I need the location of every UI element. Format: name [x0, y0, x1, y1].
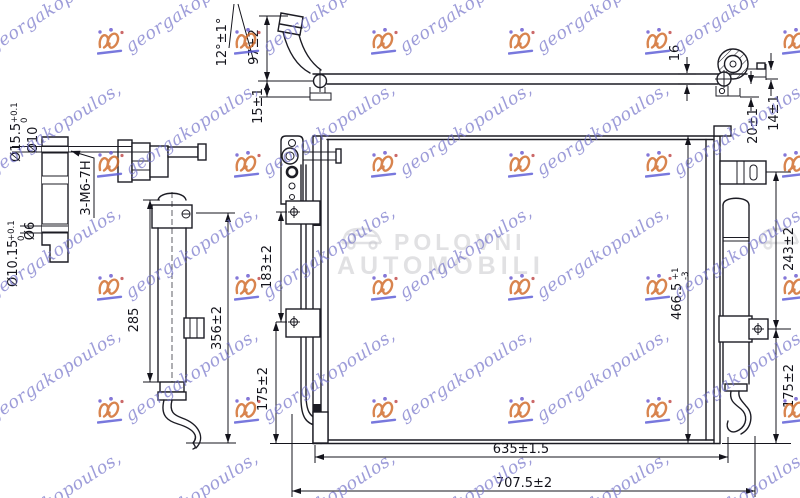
georgakopoulos-logo-icon: [98, 151, 124, 177]
svg-text:+1: +1: [671, 267, 681, 280]
georgakopoulos-logo-icon: [509, 151, 535, 177]
dim-receiver-length: 285: [127, 308, 142, 333]
georgakopoulos-logo-icon: [646, 397, 672, 423]
watermark-text: georgakopoulos,: [122, 448, 262, 498]
georgakopoulos-logo-icon: [98, 397, 124, 423]
svg-text:+0.1: +0.1: [7, 220, 17, 241]
georgakopoulos-logo-icon: [646, 151, 672, 177]
svg-text:0: 0: [20, 118, 30, 123]
watermark-text: georgakopoulos,: [259, 325, 399, 426]
georgakopoulos-logo-icon: [509, 397, 535, 423]
watermark-text: georgakopoulos,: [259, 79, 399, 180]
georgakopoulos-logo-icon: [372, 28, 398, 54]
dim-flange-thread: 3-M6-7H: [79, 160, 94, 215]
technical-drawing-page: POLOVNI AUTOMOBILI: [0, 0, 800, 498]
watermark-text: georgakopoulos,: [396, 325, 536, 426]
georgakopoulos-logo-icon: [235, 151, 261, 177]
watermark-text: georgakopoulos,: [533, 202, 673, 303]
watermark-text: georgakopoulos,: [670, 202, 800, 303]
georgakopoulos-logo-icon: [372, 397, 398, 423]
watermark-text: georgakopoulos,: [0, 448, 125, 498]
georgakopoulos-logo-icon: [783, 28, 800, 54]
watermark-text: georgakopoulos,: [533, 79, 673, 180]
georgakopoulos-logo-icon: [235, 274, 261, 300]
georgakopoulos-logo-icon: [646, 274, 672, 300]
georgakopoulos-logo-icon: [509, 28, 535, 54]
condenser-drawing-svg: POLOVNI AUTOMOBILI: [0, 0, 800, 498]
georgakopoulos-logo-icon: [783, 274, 800, 300]
watermark-text: georgakopoulos,: [122, 79, 262, 180]
svg-text:+0.1: +0.1: [10, 102, 20, 123]
georgakopoulos-logo-icon: [783, 151, 800, 177]
georgakopoulos-logo-icon: [98, 274, 124, 300]
watermark-text: georgakopoulos,: [396, 79, 536, 180]
watermark-text: georgakopoulos,: [122, 325, 262, 426]
watermark-text: georgakopoulos,: [0, 0, 125, 57]
dim-pipe-angle: 12°±1°: [215, 18, 230, 67]
svg-text:0: 0: [17, 236, 27, 241]
georgakopoulos-logo-icon: [98, 28, 124, 54]
watermark-text: georgakopoulos,: [533, 325, 673, 426]
georgakopoulos-logo-icon: [372, 151, 398, 177]
